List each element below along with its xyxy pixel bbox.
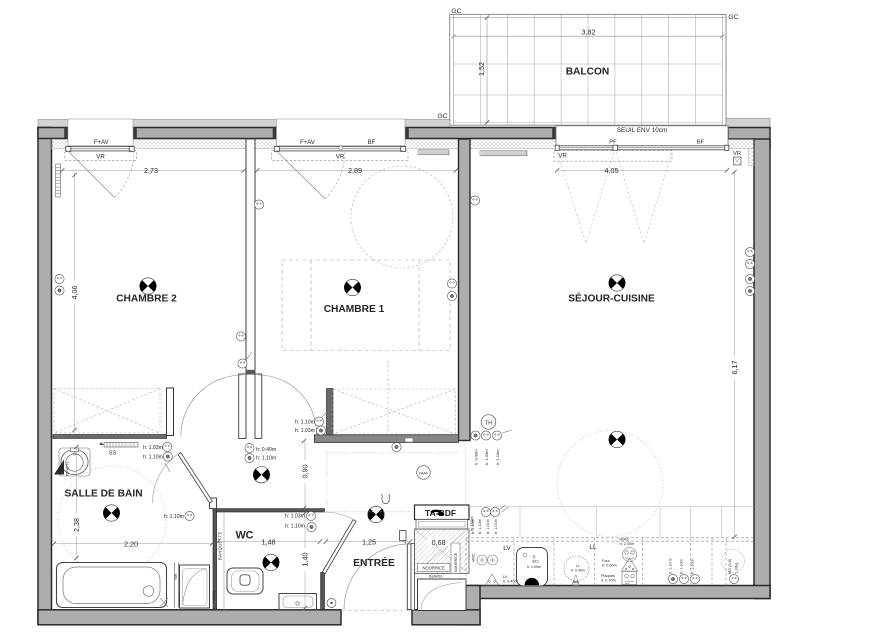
svg-text:BF: BF bbox=[368, 140, 376, 146]
svg-text:VR: VR bbox=[336, 153, 345, 160]
svg-text:ENTRÉE: ENTRÉE bbox=[353, 556, 395, 569]
svg-text:h: 1.10m: h: 1.10m bbox=[164, 514, 184, 520]
svg-text:BCL: BCL bbox=[533, 560, 540, 564]
svg-text:h: 1.03m: h: 1.03m bbox=[285, 514, 305, 520]
svg-text:BALCON: BALCON bbox=[566, 67, 610, 78]
svg-text:2,73: 2,73 bbox=[144, 166, 158, 175]
svg-text:h: 0.40m: h: 0.40m bbox=[474, 449, 479, 465]
svg-text:h: 1.10 m: h: 1.10 m bbox=[669, 558, 673, 574]
svg-text:Plaques: Plaques bbox=[601, 574, 615, 578]
svg-text:4,06: 4,06 bbox=[70, 286, 79, 300]
svg-text:MO (0.8): MO (0.8) bbox=[728, 558, 732, 574]
svg-text:Q: Q bbox=[533, 555, 536, 559]
svg-text:h: 1.10m: h: 1.10m bbox=[256, 456, 276, 462]
svg-text:F+AV: F+AV bbox=[94, 140, 109, 146]
svg-text:SEUIL ENV 10cm: SEUIL ENV 10cm bbox=[617, 127, 668, 134]
svg-text:VR: VR bbox=[96, 153, 105, 160]
svg-text:h: 1.00m: h: 1.00m bbox=[527, 565, 541, 569]
svg-text:SAVEL: SAVEL bbox=[212, 590, 216, 601]
svg-text:VR: VR bbox=[558, 152, 567, 159]
svg-text:GC: GC bbox=[728, 14, 738, 21]
svg-text:GC: GC bbox=[437, 113, 447, 120]
svg-text:BANQUETTE: BANQUETTE bbox=[218, 531, 223, 560]
svg-text:h: 0.40m: h: 0.40m bbox=[503, 580, 518, 584]
svg-text:h: 0.70m: h: 0.70m bbox=[601, 579, 616, 583]
svg-text:h: 1.01m: h: 1.01m bbox=[494, 519, 498, 534]
svg-text:Hotte: Hotte bbox=[620, 538, 629, 542]
svg-text:WC: WC bbox=[236, 530, 254, 542]
svg-text:h: 1.03m: h: 1.03m bbox=[484, 449, 489, 465]
svg-text:h: 0.40m: h: 0.40m bbox=[256, 447, 276, 453]
svg-text:F+AV: F+AV bbox=[300, 140, 315, 146]
svg-text:4,05: 4,05 bbox=[605, 166, 619, 175]
svg-text:Four: Four bbox=[602, 559, 611, 563]
svg-text:1.10kg: 1.10kg bbox=[735, 563, 739, 574]
svg-text:LV: LV bbox=[503, 575, 508, 579]
svg-text:TH: TH bbox=[485, 421, 492, 427]
svg-text:3,82: 3,82 bbox=[582, 28, 596, 37]
svg-text:NOURRICE: NOURRICE bbox=[454, 552, 458, 572]
svg-text:VR: VR bbox=[733, 151, 741, 157]
svg-text:DAAF: DAAF bbox=[419, 471, 428, 475]
svg-text:CHAMBRE 2: CHAMBRE 2 bbox=[116, 294, 177, 305]
svg-text:SÉJOUR-CUISINE: SÉJOUR-CUISINE bbox=[568, 292, 655, 305]
svg-text:h: 1.03m: h: 1.03m bbox=[470, 516, 474, 531]
svg-text:h: 1.10m: h: 1.10m bbox=[285, 524, 305, 530]
svg-text:2,20: 2,20 bbox=[124, 539, 138, 548]
svg-text:BF: BF bbox=[697, 140, 705, 146]
svg-text:1,48: 1,48 bbox=[262, 537, 276, 546]
svg-text:0,68: 0,68 bbox=[432, 538, 446, 547]
svg-text:h: 1.10m: h: 1.10m bbox=[143, 455, 163, 461]
svg-text:h: 1.10m: h: 1.10m bbox=[691, 559, 695, 574]
svg-text:h: 1.01m: h: 1.01m bbox=[486, 519, 490, 534]
svg-text:h: 2.00m: h: 2.00m bbox=[620, 542, 635, 546]
svg-text:h: 1.10m: h: 1.10m bbox=[295, 420, 315, 426]
svg-text:RVbO TL: RVbO TL bbox=[66, 461, 70, 476]
svg-text:6,17: 6,17 bbox=[730, 361, 739, 375]
svg-text:h: 1.10m: h: 1.10m bbox=[495, 449, 500, 465]
svg-text:1,25: 1,25 bbox=[362, 537, 376, 546]
svg-text:h: 0.60m: h: 0.60m bbox=[602, 564, 617, 568]
svg-text:SsAVEL: SsAVEL bbox=[429, 574, 444, 579]
svg-text:SS: SS bbox=[109, 451, 117, 457]
svg-text:GC: GC bbox=[451, 8, 461, 15]
svg-text:LV: LV bbox=[503, 545, 511, 552]
svg-text:LL: LL bbox=[576, 564, 580, 568]
svg-text:VMC: VMC bbox=[472, 553, 476, 562]
svg-text:VMI: VMI bbox=[174, 574, 178, 580]
svg-text:SALLE DE BAIN: SALLE DE BAIN bbox=[64, 489, 142, 500]
svg-text:h: 1.03m: h: 1.03m bbox=[143, 445, 163, 451]
svg-text:h: 0.40m: h: 0.40m bbox=[571, 569, 585, 573]
svg-text:1,40: 1,40 bbox=[301, 553, 310, 567]
svg-text:0,90: 0,90 bbox=[301, 465, 310, 479]
svg-text:PF: PF bbox=[609, 140, 617, 146]
svg-text:NOURRICE: NOURRICE bbox=[423, 566, 446, 571]
svg-text:h: 1.03m: h: 1.03m bbox=[295, 428, 315, 434]
svg-text:2,38: 2,38 bbox=[72, 518, 81, 532]
svg-text:h: 1.10m: h: 1.10m bbox=[680, 559, 684, 574]
svg-text:h: 1.10m: h: 1.10m bbox=[478, 519, 482, 534]
svg-text:CHAMBRE 1: CHAMBRE 1 bbox=[324, 304, 385, 315]
svg-text:1,52: 1,52 bbox=[477, 62, 486, 76]
svg-text:2,89: 2,89 bbox=[348, 166, 362, 175]
svg-text:LL: LL bbox=[589, 544, 597, 551]
